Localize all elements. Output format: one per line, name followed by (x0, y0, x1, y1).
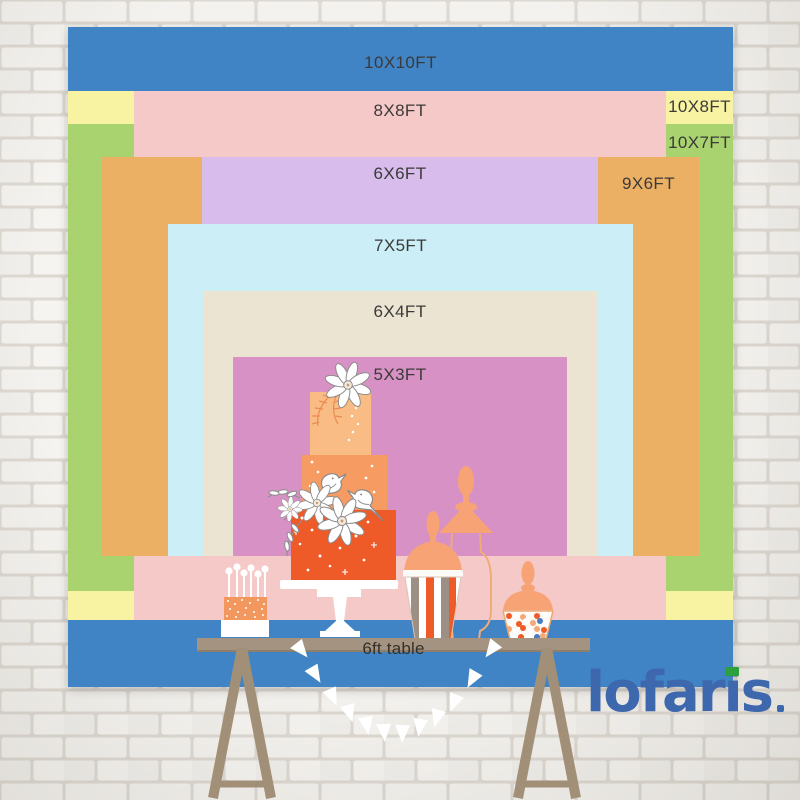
size-label-10x8ft: 10X8FT (666, 97, 733, 116)
size-label-6x4ft: 6X4FT (203, 302, 597, 321)
lofaris-logo: lofaris (586, 665, 772, 725)
logo-accent-mark (725, 667, 739, 676)
backdrop-layer-5x3ft (233, 357, 567, 556)
size-label-10x10ft: 10X10FT (68, 53, 733, 72)
size-label-9x6ft: 9X6FT (598, 174, 699, 193)
size-label-10x7ft: 10X7FT (666, 133, 733, 152)
size-label-6x6ft: 6X6FT (202, 164, 598, 183)
lofaris-logo-text: lofaris (586, 665, 772, 721)
backdrop-size-chart: 10X10FT 8X8FT 10X8FT 10X7FT 6X6FT 9X6FT … (0, 0, 800, 800)
size-label-8x8ft: 8X8FT (134, 101, 666, 120)
size-label-7x5ft: 7X5FT (168, 236, 633, 255)
table-size-label: 6ft table (197, 639, 590, 658)
logo-registered-dot (777, 705, 784, 712)
size-label-5x3ft: 5X3FT (233, 365, 567, 384)
